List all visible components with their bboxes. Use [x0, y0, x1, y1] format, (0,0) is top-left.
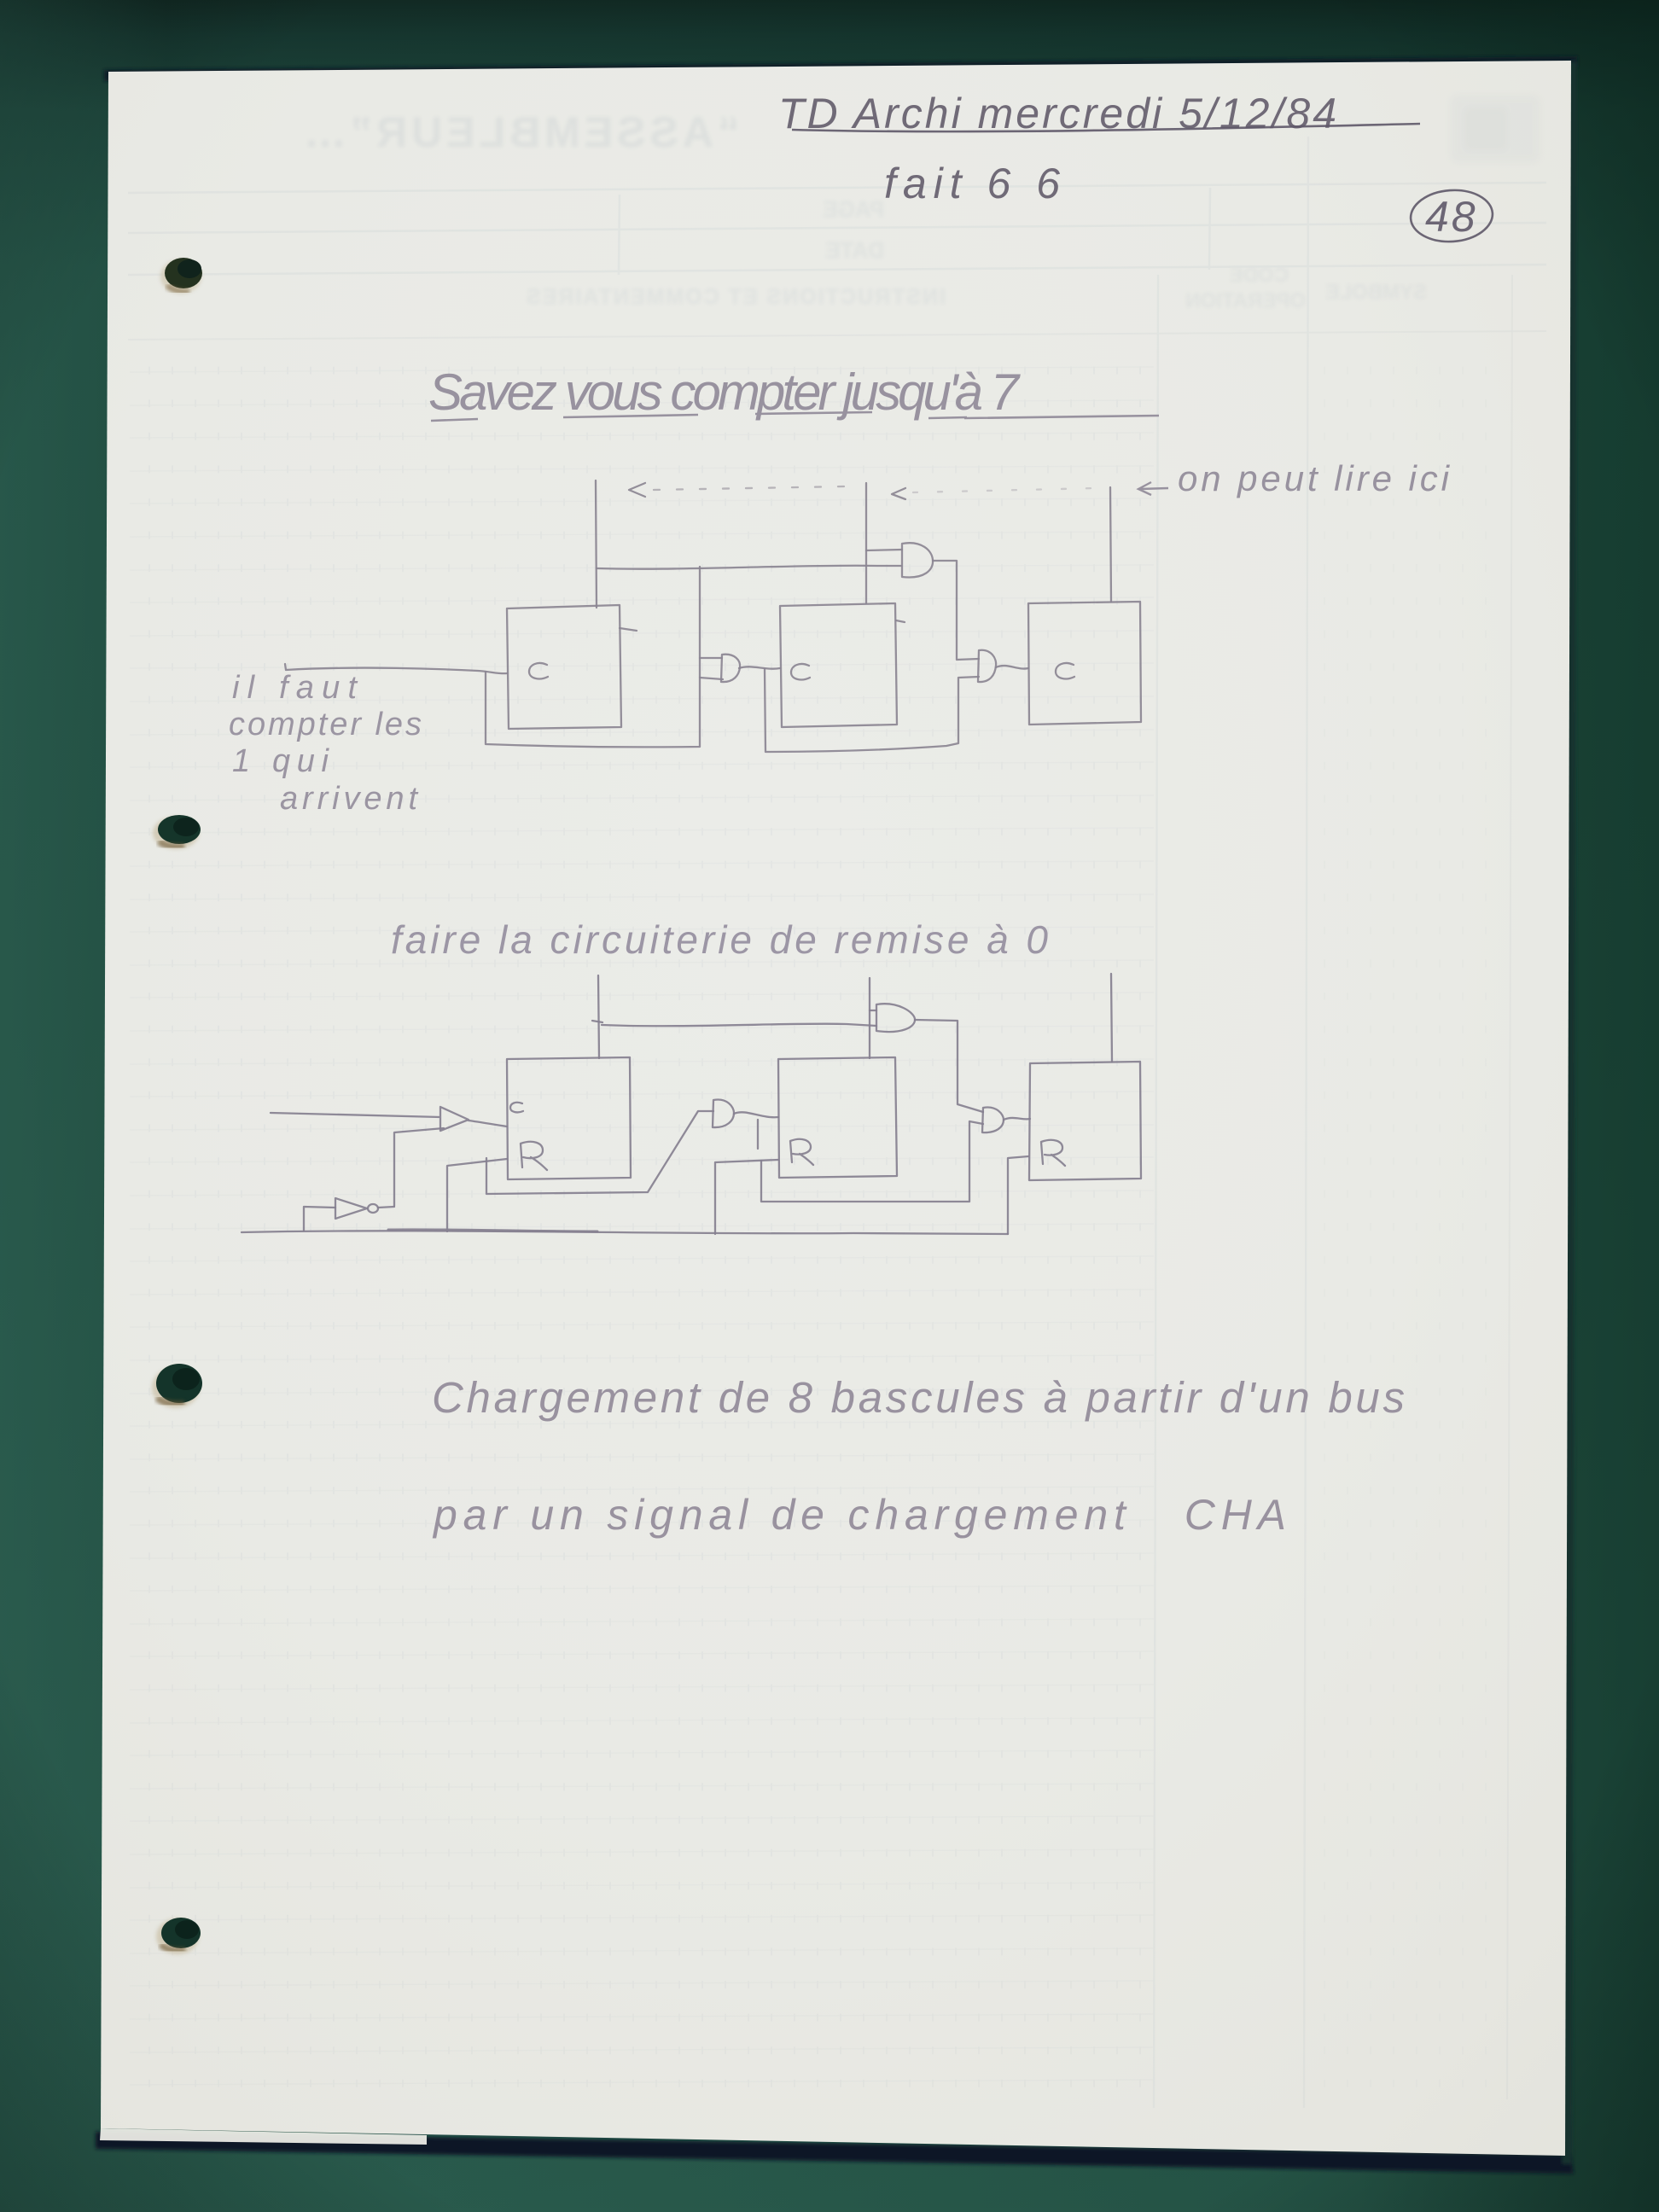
svg-text:PAGE: PAGE	[823, 196, 884, 222]
svg-text:par un signal de chargement: par un signal de chargement CHA	[432, 1491, 1289, 1539]
svg-text:OPERATION: OPERATION	[1185, 289, 1306, 312]
svg-text:48: 48	[1425, 193, 1478, 241]
svg-text:on peut lire ici: on peut lire ici	[1178, 458, 1451, 498]
svg-text:SYMBOLE: SYMBOLE	[1325, 281, 1427, 304]
svg-text:Chargement de 8 bascules à par: Chargement de 8 bascules à partir d'un b…	[432, 1373, 1406, 1422]
svg-text:faire la circuiterie de remise: faire la circuiterie de remise à 0	[391, 917, 1050, 962]
svg-text:compter les: compter les	[229, 707, 422, 742]
svg-text:“ASSEMBLEUR”…: “ASSEMBLEUR”…	[300, 108, 739, 156]
svg-text:Savez vous compter jusqu'à 7: Savez vous compter jusqu'à 7	[428, 364, 1022, 421]
svg-text:INSTRUCTIONS ET COMMENTAIRES: INSTRUCTIONS ET COMMENTAIRES	[525, 285, 946, 309]
svg-text:CODE: CODE	[1230, 264, 1289, 287]
svg-text:DATE: DATE	[825, 237, 884, 263]
